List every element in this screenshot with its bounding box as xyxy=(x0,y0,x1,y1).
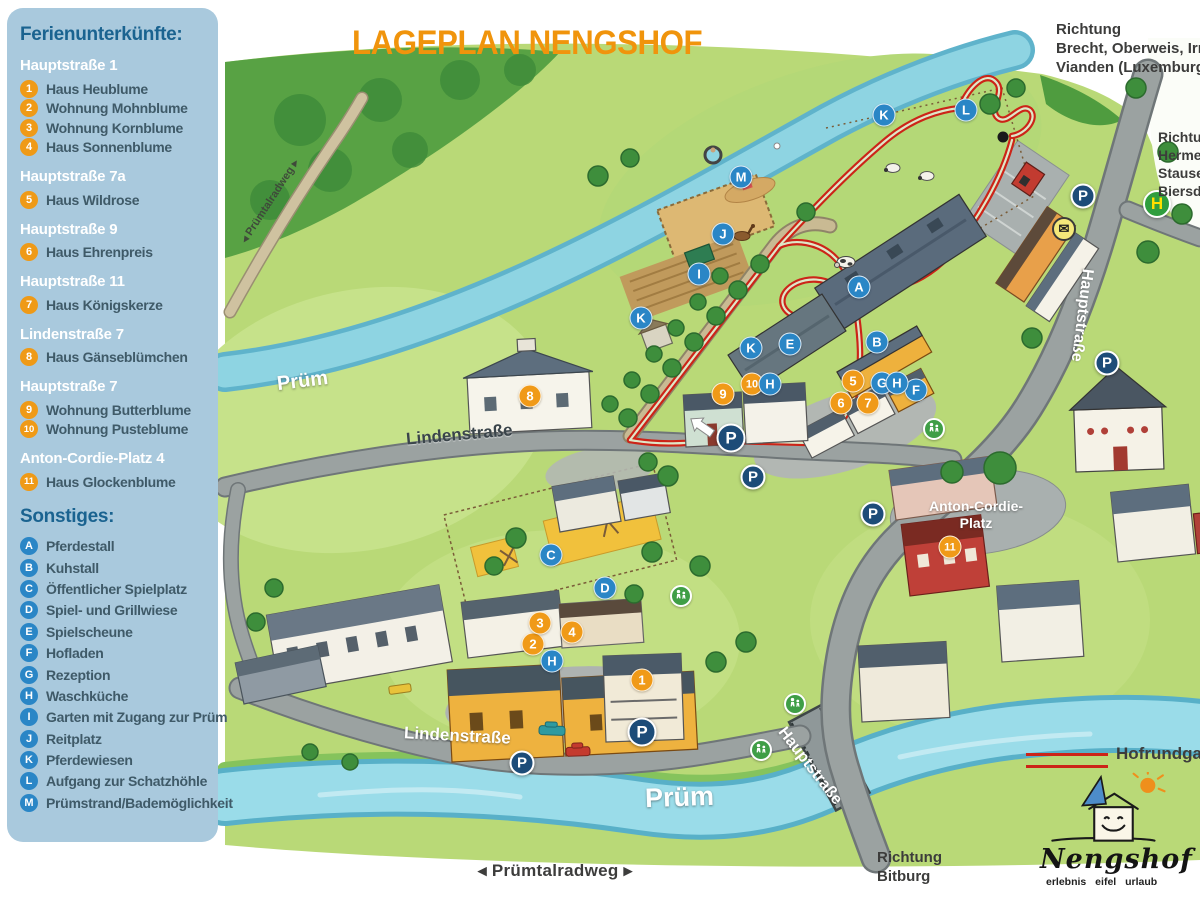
marker-let-K: K xyxy=(740,337,763,360)
lageplan-page: { "title": "LAGEPLAN NENGSHOF", "sidebar… xyxy=(0,0,1200,900)
legend-marker-2: 2 xyxy=(20,99,38,117)
legend-address: Hauptstraße 9 xyxy=(20,221,218,238)
legend-item: JReitplatz xyxy=(20,728,218,749)
marker-num-7: 7 xyxy=(857,392,880,415)
legend-item-label: Hofladen xyxy=(46,645,104,661)
legend-item: IGarten mit Zugang zur Prüm xyxy=(20,707,218,728)
marker-park-P: P xyxy=(1071,184,1096,209)
marker-dot xyxy=(998,132,1009,143)
marker-cross xyxy=(750,739,772,761)
legend-marker-6: 6 xyxy=(20,243,38,261)
legend-marker-E: E xyxy=(20,623,38,641)
marker-let-H: H xyxy=(541,650,564,673)
legend-marker-3: 3 xyxy=(20,119,38,137)
page-title: LAGEPLAN NENGSHOF xyxy=(352,24,702,63)
marker-post-✉: ✉ xyxy=(1052,217,1076,241)
legend-item: APferdestall xyxy=(20,536,218,557)
marker-cross xyxy=(923,418,945,440)
legend-marker-L: L xyxy=(20,772,38,790)
logo-drawing xyxy=(1032,772,1200,844)
marker-let-B: B xyxy=(866,331,889,354)
marker-let-E: E xyxy=(779,333,802,356)
legend-group: Hauptstraße 7a5Haus Wildrose xyxy=(20,168,218,210)
nengshof-logo: Nengshof erlebnis eifel urlaub xyxy=(1032,772,1200,892)
legend-address: Hauptstraße 11 xyxy=(20,273,218,290)
legend-item: LAufgang zur Schatzhöhle xyxy=(20,771,218,792)
marker-num-8: 8 xyxy=(519,385,542,408)
legend-item: 10Wohnung Pusteblume xyxy=(20,420,218,440)
legend-item: 2Wohnung Mohnblume xyxy=(20,99,218,119)
marker-let-J: J xyxy=(712,223,735,246)
legend-marker-B: B xyxy=(20,559,38,577)
legend-marker-7: 7 xyxy=(20,296,38,314)
legend-heading: Ferienunterkünfte: xyxy=(20,24,218,46)
legend-item: DSpiel- und Grillwiese xyxy=(20,600,218,621)
logo-name: Nengshof xyxy=(1040,844,1193,875)
marker-let-K: K xyxy=(873,104,896,127)
legend-marker-H: H xyxy=(20,687,38,705)
legend-item: 8Haus Gänseblümchen xyxy=(20,348,218,368)
legend-group: Anton-Cordie-Platz 411Haus Glockenblume xyxy=(20,450,218,492)
legend-group: Hauptstraße 117Haus Königskerze xyxy=(20,273,218,315)
legend-item-label: Pferdestall xyxy=(46,538,114,554)
hofrundgang-label: Hofrundgang xyxy=(1116,744,1200,764)
marker-let-D: D xyxy=(594,577,617,600)
legend-item-label: Rezeption xyxy=(46,667,110,683)
legend-marker-8: 8 xyxy=(20,348,38,366)
legend-item: ESpielscheune xyxy=(20,621,218,642)
legend-item: 7Haus Königskerze xyxy=(20,295,218,315)
marker-num-11: 11 xyxy=(939,536,962,559)
marker-let-I: I xyxy=(688,263,711,286)
marker-park-P: P xyxy=(510,751,535,776)
legend-item: 6Haus Ehrenpreis xyxy=(20,243,218,263)
legend-marker-10: 10 xyxy=(20,420,38,438)
legend-marker-J: J xyxy=(20,730,38,748)
legend-item-label: Pferdewiesen xyxy=(46,752,133,768)
marker-park-P: P xyxy=(717,424,746,453)
legend-item: 3Wohnung Kornblume xyxy=(20,118,218,138)
logo-tagline: erlebnis eifel urlaub xyxy=(1046,876,1157,888)
legend-marker-M: M xyxy=(20,794,38,812)
legend-marker-9: 9 xyxy=(20,401,38,419)
legend-marker-1: 1 xyxy=(20,80,38,98)
marker-num-3: 3 xyxy=(529,612,552,635)
legend-address: Lindenstraße 7 xyxy=(20,326,218,343)
legend-item-label: Haus Ehrenpreis xyxy=(46,244,153,260)
marker-park-P: P xyxy=(861,502,886,527)
legend-item: CÖffentlicher Spielplatz xyxy=(20,578,218,599)
legend-item-label: Haus Gänseblümchen xyxy=(46,349,188,365)
legend-marker-I: I xyxy=(20,708,38,726)
legend-item-label: Wohnung Kornblume xyxy=(46,120,183,136)
legend-group: Hauptstraße 79Wohnung Butterblume10Wohnu… xyxy=(20,378,218,439)
legend-groups: Hauptstraße 11Haus Heublume2Wohnung Mohn… xyxy=(20,57,218,492)
legend-marker-D: D xyxy=(20,601,38,619)
legend-item-label: Spiel- und Grillwiese xyxy=(46,602,177,618)
marker-let-H: H xyxy=(886,372,909,395)
legend-item: 1Haus Heublume xyxy=(20,79,218,99)
marker-num-2: 2 xyxy=(522,633,545,656)
marker-num-6: 6 xyxy=(830,392,853,415)
legend-item: 4Haus Sonnenblume xyxy=(20,138,218,158)
marker-cross xyxy=(670,585,692,607)
legend-marker-5: 5 xyxy=(20,191,38,209)
marker-let-A: A xyxy=(848,276,871,299)
legend-item: 5Haus Wildrose xyxy=(20,190,218,210)
legend-address: Hauptstraße 7a xyxy=(20,168,218,185)
legend-item-label: Wohnung Pusteblume xyxy=(46,421,188,437)
marker-num-1: 1 xyxy=(631,669,654,692)
legend-item-label: Haus Königskerze xyxy=(46,297,163,313)
marker-num-9: 9 xyxy=(712,383,735,406)
legend-item-label: Aufgang zur Schatzhöhle xyxy=(46,773,207,789)
radweg-bottom-label: ◂ Prümtalradweg ▸ xyxy=(478,861,632,881)
legend-item-label: Reitplatz xyxy=(46,731,102,747)
marker-num-4: 4 xyxy=(561,621,584,644)
legend-item: FHofladen xyxy=(20,642,218,663)
marker-num-5: 5 xyxy=(842,370,865,393)
legend-marker-4: 4 xyxy=(20,138,38,156)
legend-item-label: Wohnung Butterblume xyxy=(46,402,191,418)
legend-address: Hauptstraße 1 xyxy=(20,57,218,74)
legend-group: Hauptstraße 96Haus Ehrenpreis xyxy=(20,221,218,263)
legend-letter-list: APferdestallBKuhstallCÖffentlicher Spiel… xyxy=(20,536,218,814)
river-label-lower: Prüm xyxy=(644,781,714,814)
legend-address: Anton-Cordie-Platz 4 xyxy=(20,450,218,467)
direction-bitburg: Richtung Bitburg xyxy=(877,848,942,886)
marker-park-P: P xyxy=(628,718,657,747)
legend-marker-K: K xyxy=(20,751,38,769)
legend-item-label: Wohnung Mohnblume xyxy=(46,100,188,116)
legend-marker-C: C xyxy=(20,580,38,598)
legend-item: 9Wohnung Butterblume xyxy=(20,400,218,420)
marker-park-P: P xyxy=(741,465,766,490)
legend-other-heading: Sonstiges: xyxy=(20,506,218,528)
legend-group: Lindenstraße 78Haus Gänseblümchen xyxy=(20,326,218,368)
legend-item-label: Haus Heublume xyxy=(46,81,148,97)
direction-right-edge: Richtung Hermesdorf Stausee Biersdorf xyxy=(1158,128,1200,200)
legend-address: Hauptstraße 7 xyxy=(20,378,218,395)
legend-marker-A: A xyxy=(20,537,38,555)
legend-item-label: Prümstrand/Bademöglichkeit xyxy=(46,795,233,811)
legend-marker-G: G xyxy=(20,666,38,684)
platz-label: Anton-Cordie- Platz xyxy=(926,498,1026,532)
legend-group: Hauptstraße 11Haus Heublume2Wohnung Mohn… xyxy=(20,57,218,157)
direction-top-right: Richtung Brecht, Oberweis, Irrel, Viande… xyxy=(1056,20,1200,77)
legend-item-label: Garten mit Zugang zur Prüm xyxy=(46,709,227,725)
legend-item-label: Haus Glockenblume xyxy=(46,474,176,490)
legend-item-label: Haus Sonnenblume xyxy=(46,139,172,155)
legend-item-label: Öffentlicher Spielplatz xyxy=(46,581,187,597)
marker-let-H: H xyxy=(759,373,782,396)
marker-let-M: M xyxy=(730,166,753,189)
legend-item-label: Kuhstall xyxy=(46,560,99,576)
legend-item-label: Haus Wildrose xyxy=(46,192,139,208)
legend-item: GRezeption xyxy=(20,664,218,685)
legend-item: 11Haus Glockenblume xyxy=(20,472,218,492)
marker-let-C: C xyxy=(540,544,563,567)
legend-item: KPferdewiesen xyxy=(20,749,218,770)
legend-panel: Ferienunterkünfte: Hauptstraße 11Haus He… xyxy=(7,8,218,842)
marker-let-L: L xyxy=(955,99,978,122)
legend-item: HWaschküche xyxy=(20,685,218,706)
legend-marker-F: F xyxy=(20,644,38,662)
legend-item-label: Spielscheune xyxy=(46,624,133,640)
legend-item: MPrümstrand/Bademöglichkeit xyxy=(20,792,218,813)
marker-park-P: P xyxy=(1095,351,1120,376)
legend-item: BKuhstall xyxy=(20,557,218,578)
marker-cross xyxy=(784,693,806,715)
legend-marker-11: 11 xyxy=(20,473,38,491)
legend-item-label: Waschküche xyxy=(46,688,128,704)
hofrundgang-line-sample xyxy=(1026,753,1108,768)
marker-let-K: K xyxy=(630,307,653,330)
